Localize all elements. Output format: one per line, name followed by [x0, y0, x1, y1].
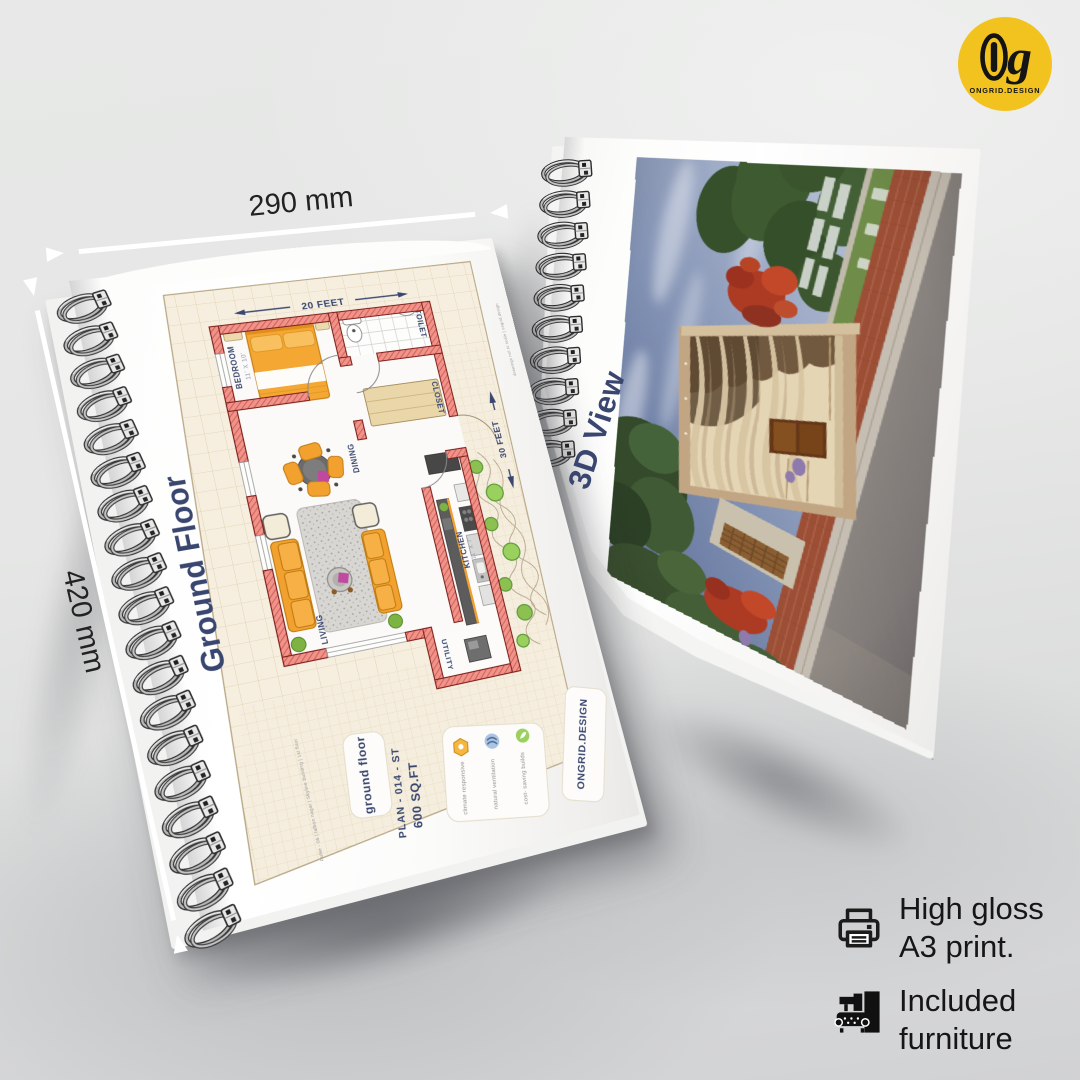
svg-text:ONGRID.DESIGN: ONGRID.DESIGN — [970, 86, 1041, 95]
svg-text:g: g — [1006, 29, 1032, 85]
